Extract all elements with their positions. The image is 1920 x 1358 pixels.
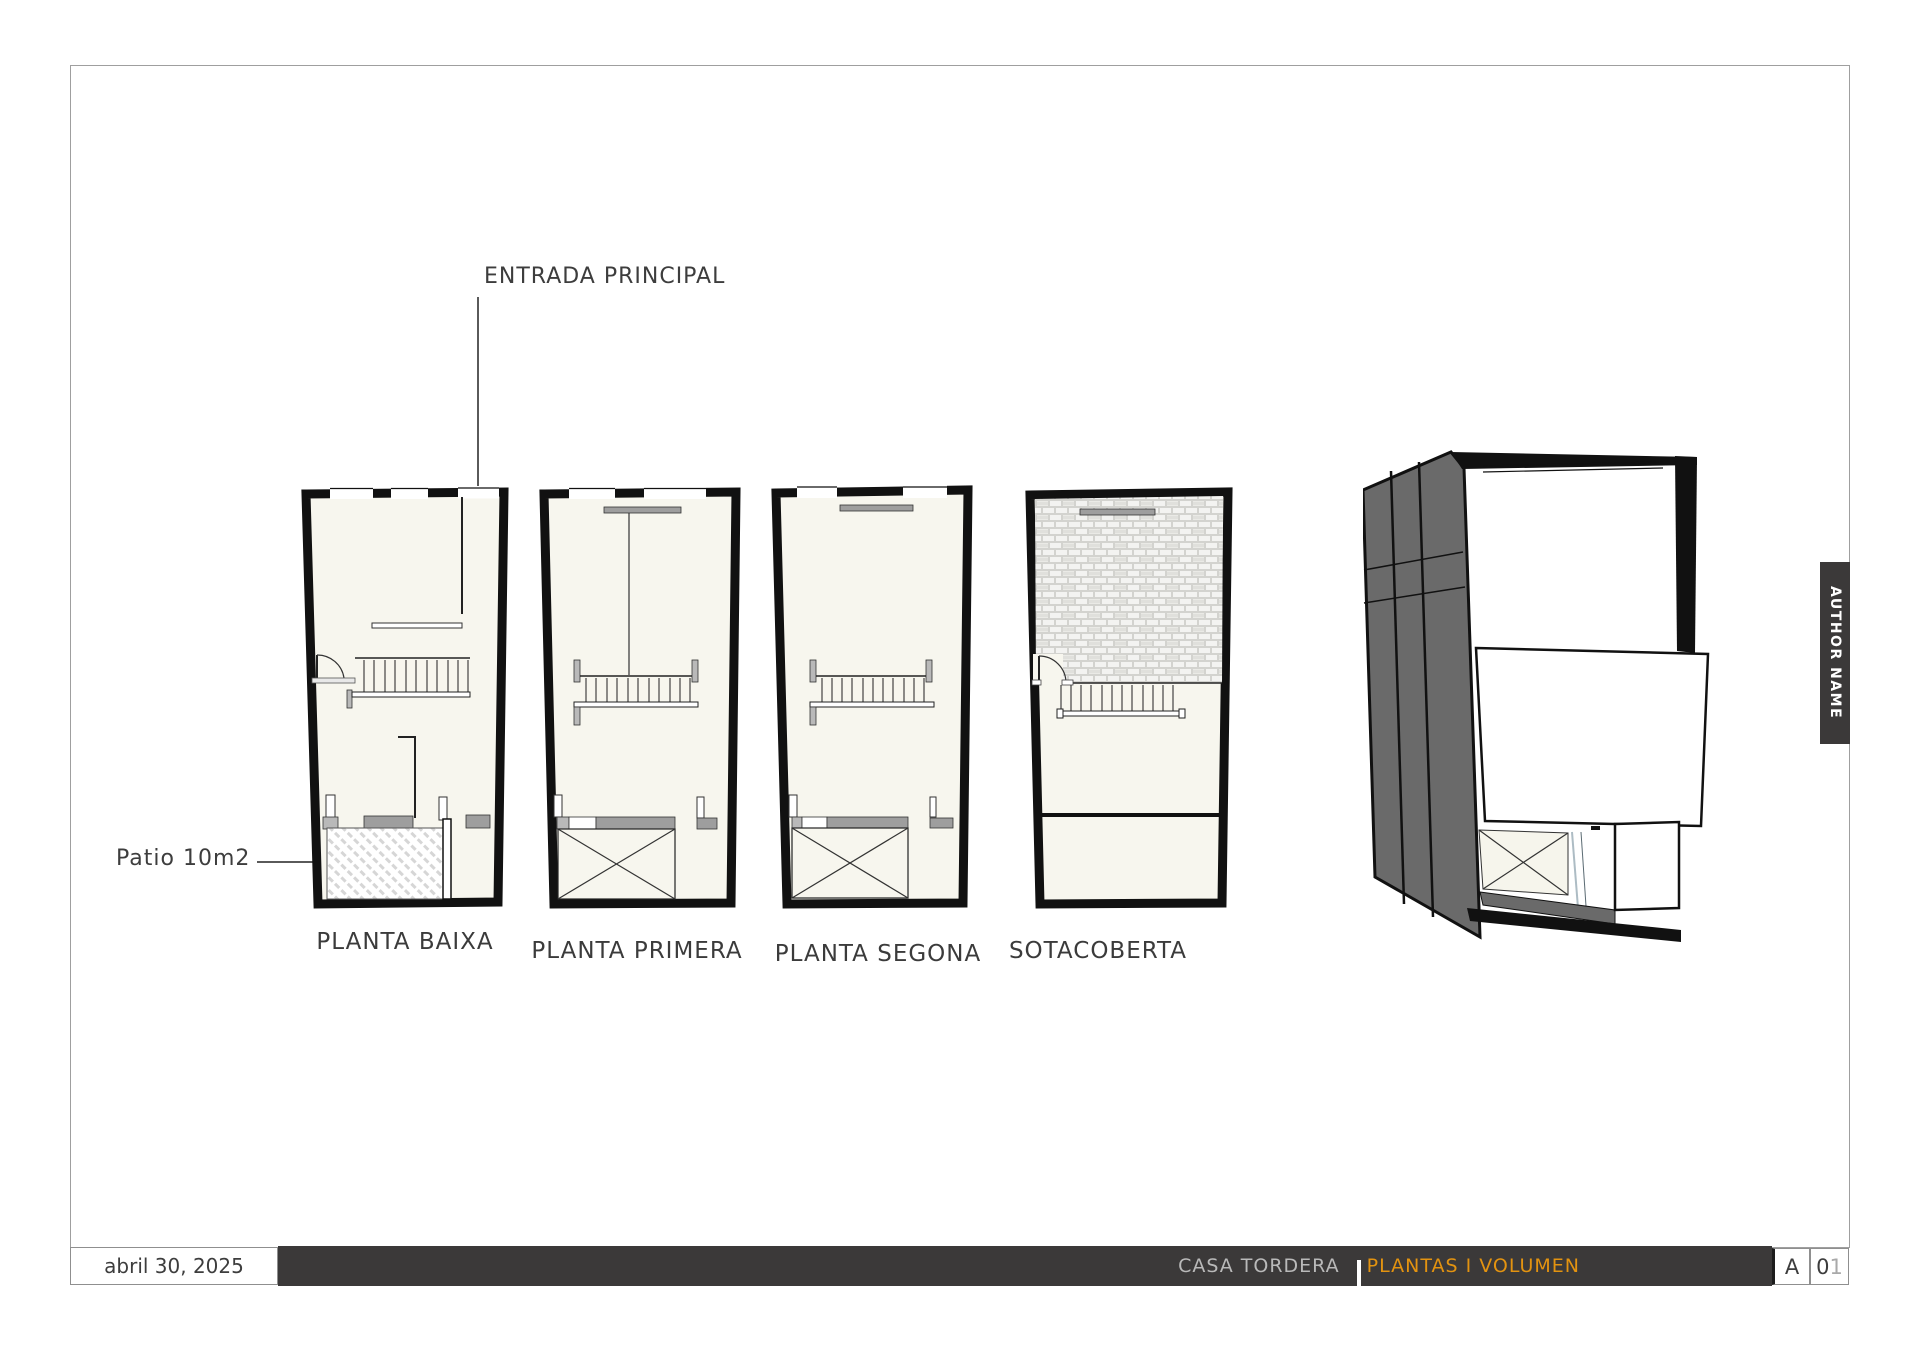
drawing-sheet: ENTRADA PRINCIPAL Patio 10m2 (0, 0, 1920, 1358)
floorplan-sotacoberta (1023, 486, 1235, 910)
sheet-title-label[interactable]: PLANTAS I VOLUMEN (1367, 1255, 1580, 1277)
plan-label-planta-primera: PLANTA PRIMERA (531, 938, 742, 964)
sheet-series-box: A (1772, 1248, 1810, 1285)
plan-label-planta-baixa: PLANTA BAIXA (316, 929, 493, 955)
sheet-number-secondary: 1 (1830, 1255, 1843, 1279)
author-name-label: AUTHOR NAME (1827, 586, 1843, 719)
volume-axonometric-view (1363, 440, 1743, 1000)
plan-label-sotacoberta: SOTACOBERTA (1009, 938, 1187, 964)
entrance-annotation-label: ENTRADA PRINCIPAL (484, 264, 725, 289)
titlebar-bar: CASA TORDERA PLANTAS I VOLUMEN (278, 1246, 1772, 1286)
floorplan-planta-primera (538, 486, 742, 910)
title-block: abril 30, 2025 CASA TORDERA PLANTAS I VO… (70, 1246, 1849, 1286)
sheet-number-box: 01 (1810, 1248, 1849, 1285)
date-label: abril 30, 2025 (104, 1254, 244, 1278)
plan-label-planta-segona: PLANTA SEGONA (775, 941, 981, 967)
floorplan-planta-baixa (300, 486, 512, 910)
sheet-series-label: A (1785, 1255, 1799, 1279)
sheet-number-primary: 0 (1816, 1255, 1829, 1279)
author-name-tab: AUTHOR NAME (1820, 562, 1850, 744)
project-name-label: CASA TORDERA (1178, 1255, 1347, 1277)
patio-annotation-label: Patio 10m2 (116, 846, 250, 871)
entrance-leader-line (477, 297, 479, 489)
floorplan-planta-segona (770, 484, 976, 910)
text-cursor[interactable] (1357, 1260, 1361, 1287)
date-box: abril 30, 2025 (70, 1247, 278, 1285)
